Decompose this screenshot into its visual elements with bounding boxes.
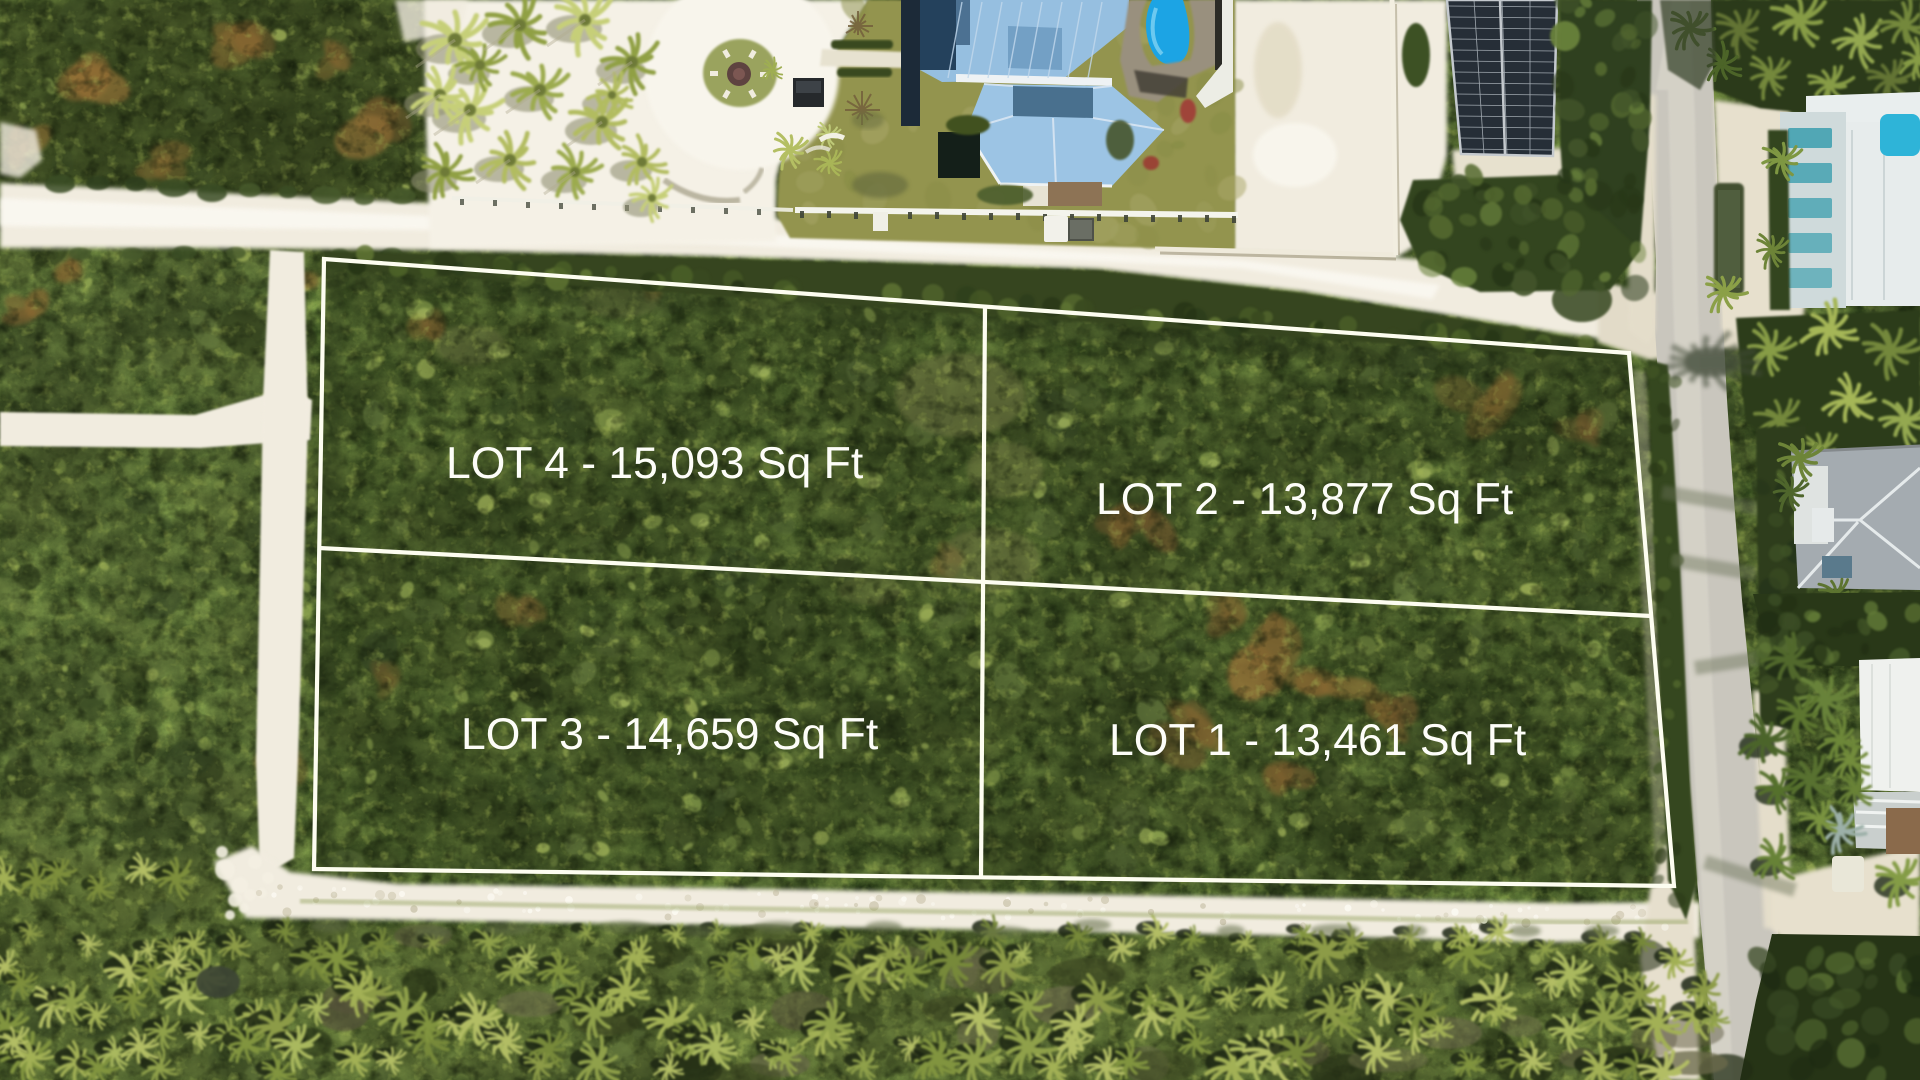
svg-text:LOT 3 - 14,659 Sq Ft: LOT 3 - 14,659 Sq Ft <box>461 710 879 759</box>
svg-text:LOT 2 - 13,877 Sq Ft: LOT 2 - 13,877 Sq Ft <box>1096 475 1514 524</box>
svg-text:LOT 1 - 13,461 Sq Ft: LOT 1 - 13,461 Sq Ft <box>1109 716 1527 765</box>
svg-text:LOT 4 - 15,093 Sq Ft: LOT 4 - 15,093 Sq Ft <box>446 439 864 488</box>
